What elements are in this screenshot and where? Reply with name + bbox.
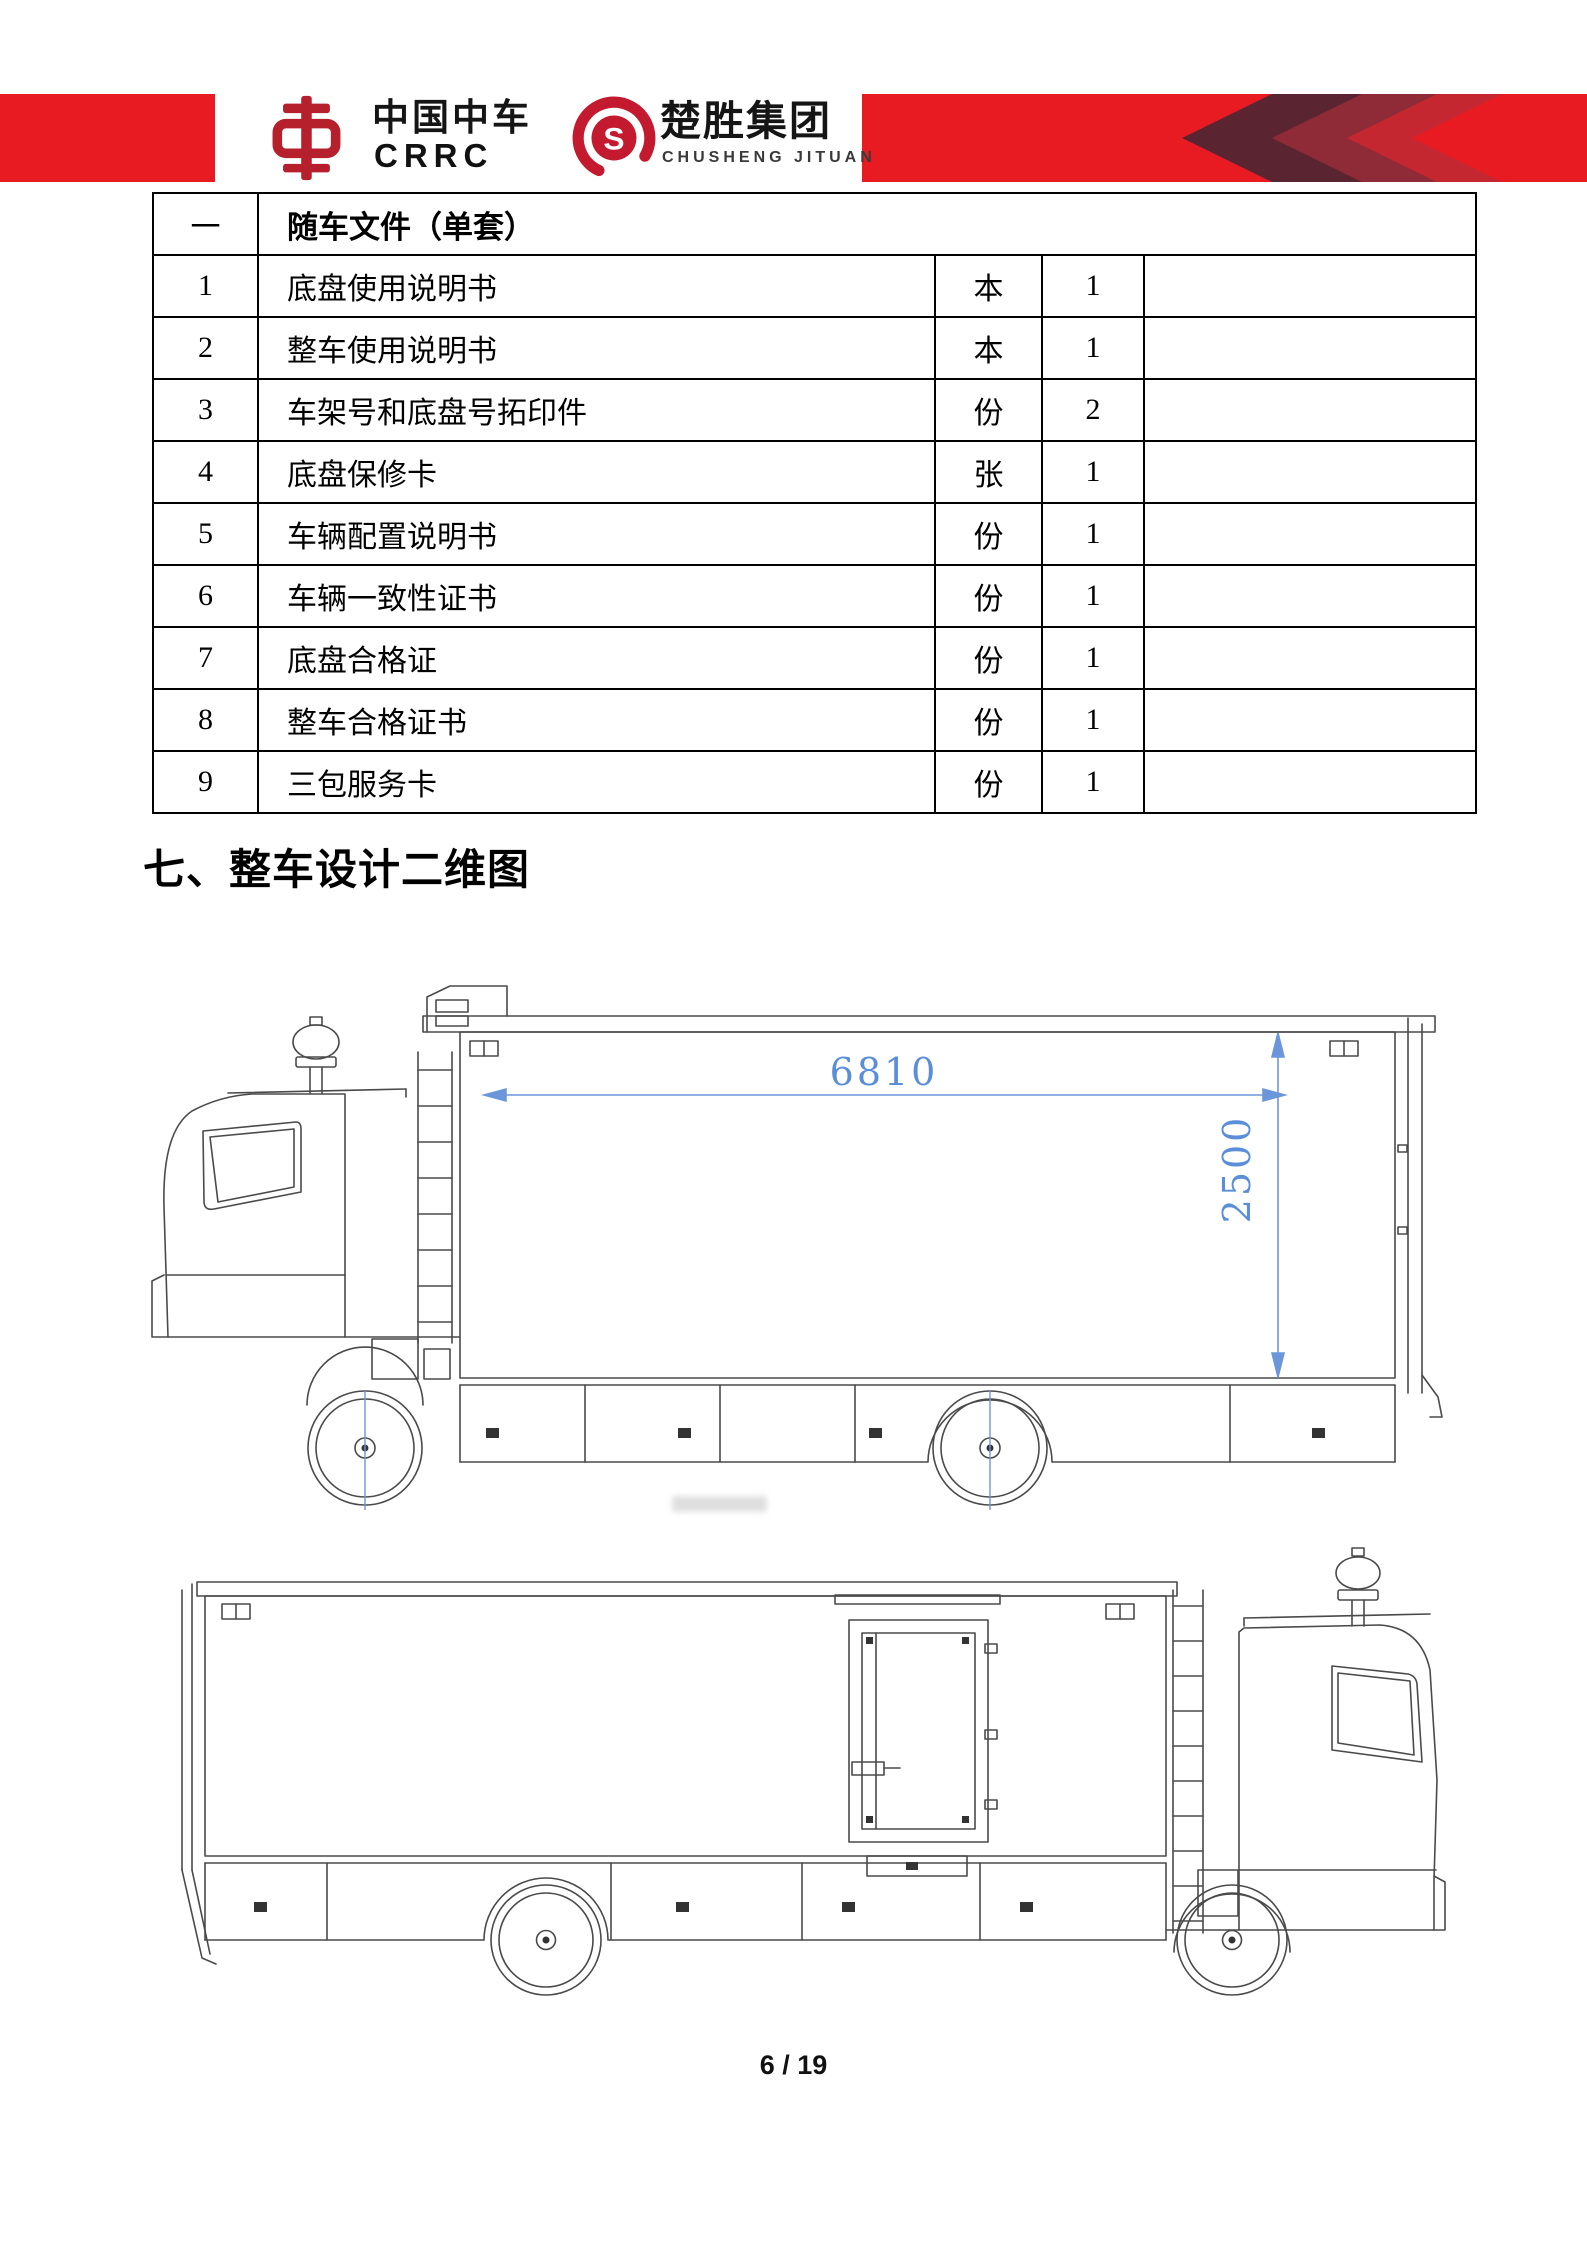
table-row: 5 车辆配置说明书 份 1 bbox=[153, 503, 1476, 565]
row-remark bbox=[1144, 255, 1476, 317]
truck-side-view-door bbox=[140, 1540, 1460, 2010]
row-remark bbox=[1144, 751, 1476, 813]
row-unit: 份 bbox=[935, 689, 1042, 751]
page-number: 6 / 19 bbox=[0, 2050, 1587, 2081]
wheel-centerlines bbox=[365, 1391, 990, 1510]
table-header-row: 一 随车文件（单套） bbox=[153, 193, 1476, 255]
row-remark bbox=[1144, 317, 1476, 379]
crrc-name-en: CRRC bbox=[374, 139, 493, 172]
row-name: 底盘使用说明书 bbox=[258, 255, 935, 317]
row-no: 9 bbox=[153, 751, 258, 813]
truck-side-view-dimensioned: 6810 2500 bbox=[140, 945, 1460, 1510]
table-row: 2 整车使用说明书 本 1 bbox=[153, 317, 1476, 379]
row-no: 5 bbox=[153, 503, 258, 565]
crrc-name-cn: 中国中车 bbox=[372, 99, 532, 136]
row-no: 3 bbox=[153, 379, 258, 441]
row-remark bbox=[1144, 503, 1476, 565]
row-qty: 1 bbox=[1042, 689, 1144, 751]
chusheng-emblem-icon: S bbox=[570, 94, 658, 182]
row-name: 三包服务卡 bbox=[258, 751, 935, 813]
row-remark bbox=[1144, 379, 1476, 441]
dim-height-label: 2500 bbox=[1215, 1115, 1259, 1224]
chusheng-name-cn: 楚胜集团 bbox=[660, 101, 832, 142]
row-qty: 1 bbox=[1042, 255, 1144, 317]
row-unit: 份 bbox=[935, 379, 1042, 441]
chevrons-icon bbox=[862, 94, 1587, 182]
table-row: 3 车架号和底盘号拓印件 份 2 bbox=[153, 379, 1476, 441]
table-row: 7 底盘合格证 份 1 bbox=[153, 627, 1476, 689]
row-qty: 1 bbox=[1042, 503, 1144, 565]
row-no: 4 bbox=[153, 441, 258, 503]
row-qty: 1 bbox=[1042, 751, 1144, 813]
table-row: 9 三包服务卡 份 1 bbox=[153, 751, 1476, 813]
row-unit: 本 bbox=[935, 317, 1042, 379]
row-no: 8 bbox=[153, 689, 258, 751]
chusheng-monogram: S bbox=[603, 120, 624, 156]
row-unit: 张 bbox=[935, 441, 1042, 503]
table-row: 4 底盘保修卡 张 1 bbox=[153, 441, 1476, 503]
row-qty: 1 bbox=[1042, 565, 1144, 627]
header-red-bar-left bbox=[0, 94, 215, 182]
row-no: 7 bbox=[153, 627, 258, 689]
row-unit: 份 bbox=[935, 503, 1042, 565]
row-name: 底盘合格证 bbox=[258, 627, 935, 689]
row-remark bbox=[1144, 627, 1476, 689]
row-no: 1 bbox=[153, 255, 258, 317]
row-qty: 1 bbox=[1042, 317, 1144, 379]
row-name: 整车使用说明书 bbox=[258, 317, 935, 379]
header-red-bar-right bbox=[862, 94, 1587, 182]
accompanying-documents-table: 一 随车文件（单套） 1 底盘使用说明书 本 1 2 整车使用说明书 本 1 3… bbox=[152, 192, 1477, 814]
table-row: 1 底盘使用说明书 本 1 bbox=[153, 255, 1476, 317]
crrc-emblem-icon bbox=[262, 94, 350, 182]
row-name: 车辆配置说明书 bbox=[258, 503, 935, 565]
dim-length-label: 6810 bbox=[830, 1050, 939, 1094]
row-unit: 本 bbox=[935, 255, 1042, 317]
row-remark bbox=[1144, 565, 1476, 627]
table-row: 8 整车合格证书 份 1 bbox=[153, 689, 1476, 751]
row-unit: 份 bbox=[935, 565, 1042, 627]
row-remark bbox=[1144, 441, 1476, 503]
row-unit: 份 bbox=[935, 627, 1042, 689]
row-no: 2 bbox=[153, 317, 258, 379]
section-heading: 七、整车设计二维图 bbox=[143, 846, 530, 896]
table-row: 6 车辆一致性证书 份 1 bbox=[153, 565, 1476, 627]
row-name: 车辆一致性证书 bbox=[258, 565, 935, 627]
row-no: 6 bbox=[153, 565, 258, 627]
section-index-cell: 一 bbox=[153, 193, 258, 255]
document-page: 中国中车 CRRC S 楚胜集团 CHUSHENG JITUAN 一 随车文件（… bbox=[0, 0, 1587, 2245]
row-qty: 1 bbox=[1042, 627, 1144, 689]
row-remark bbox=[1144, 689, 1476, 751]
chusheng-name-en: CHUSHENG JITUAN bbox=[662, 150, 876, 166]
section-title-cell: 随车文件（单套） bbox=[258, 193, 1476, 255]
row-name: 整车合格证书 bbox=[258, 689, 935, 751]
row-qty: 2 bbox=[1042, 379, 1144, 441]
row-name: 底盘保修卡 bbox=[258, 441, 935, 503]
row-qty: 1 bbox=[1042, 441, 1144, 503]
row-name: 车架号和底盘号拓印件 bbox=[258, 379, 935, 441]
faint-print-artifact bbox=[672, 1496, 767, 1512]
row-unit: 份 bbox=[935, 751, 1042, 813]
